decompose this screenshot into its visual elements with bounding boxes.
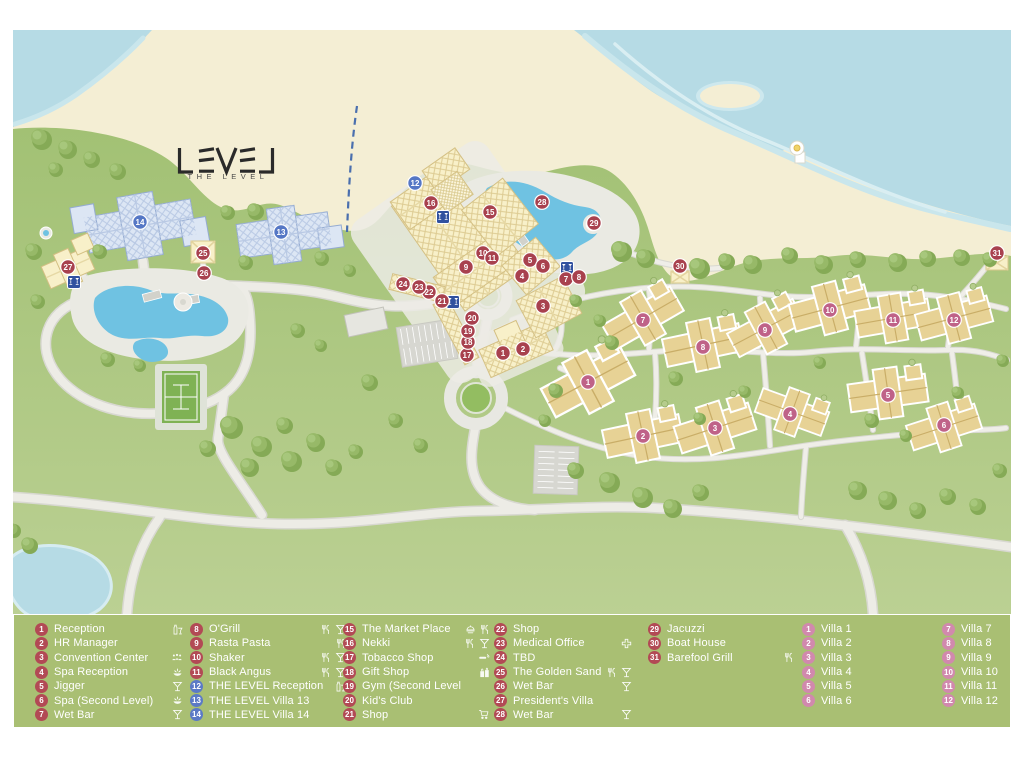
legend-label: Gym (Second Level xyxy=(362,680,461,692)
map-marker-number: 9 xyxy=(763,326,768,335)
cocktail-icon xyxy=(172,709,183,720)
map-marker-number: 15 xyxy=(486,208,495,217)
legend-marker-number: 17 xyxy=(343,651,356,664)
resort-map-page: THE LEVEL 123456789101112131415161718192… xyxy=(0,0,1024,768)
legend-item: 4Spa Reception xyxy=(35,665,185,679)
legend-column-1: 1Reception2HR Manager3Convention Center4… xyxy=(35,622,185,722)
map-marker-service-2: 2 xyxy=(516,342,531,357)
cocktail-icon xyxy=(621,681,632,692)
map-marker-service-15: 15 xyxy=(483,205,498,220)
map-marker-villa-3: 3 xyxy=(708,421,723,436)
map-marker-number: 28 xyxy=(538,198,547,207)
legend-item: 10Villa 10 xyxy=(942,665,1020,679)
legend-item: 5Jigger xyxy=(35,679,185,693)
map-marker-villa-1: 1 xyxy=(581,375,596,390)
legend-label: Jigger xyxy=(54,680,85,692)
map-marker-number: 26 xyxy=(200,269,209,278)
legend-item: 2HR Manager xyxy=(35,636,185,650)
legend-marker-number: 4 xyxy=(35,666,48,679)
legend-label: Villa 6 xyxy=(821,695,852,707)
legend-marker-number: 5 xyxy=(35,680,48,693)
legend-marker-number: 2 xyxy=(802,637,815,650)
legend-item: 11Villa 11 xyxy=(942,679,1020,693)
map-marker-number: 13 xyxy=(277,228,286,237)
legend-icons xyxy=(172,624,183,635)
map-marker-service-20: 20 xyxy=(465,311,480,326)
legend-label: Villa 3 xyxy=(821,652,852,664)
cocktail-icon xyxy=(621,709,632,720)
map-marker-service-17: 17 xyxy=(460,348,475,363)
legend-marker-number: 10 xyxy=(942,666,955,679)
wet-bar-icon xyxy=(68,276,81,289)
legend-label: Nekki xyxy=(362,637,390,649)
legend-label: Convention Center xyxy=(54,652,148,664)
legend-label: Shaker xyxy=(209,652,245,664)
cocktail-icon xyxy=(172,681,183,692)
map-marker-number: 11 xyxy=(488,254,497,263)
restaurant-icon xyxy=(784,652,794,663)
legend-marker-number: 11 xyxy=(190,666,203,679)
map-marker-level-14: 14 xyxy=(133,215,148,230)
legend-marker-number: 7 xyxy=(942,623,955,636)
map-marker-number: 12 xyxy=(950,316,959,325)
legend-label: Medical Office xyxy=(513,637,585,649)
map-marker-service-19: 19 xyxy=(461,324,476,339)
map-marker-level-12: 12 xyxy=(408,176,423,191)
legend-label: Rasta Pasta xyxy=(209,637,271,649)
map-marker-number: 5 xyxy=(886,391,891,400)
legend-label: Wet Bar xyxy=(513,709,554,721)
map-marker-villa-7: 7 xyxy=(636,313,651,328)
legend-label: President's Villa xyxy=(513,695,593,707)
legend-marker-number: 31 xyxy=(648,651,661,664)
spa-icon xyxy=(172,695,183,706)
legend-item: 10Shaker xyxy=(190,651,348,665)
map-marker-villa-9: 9 xyxy=(758,323,773,338)
legend-label: Shop xyxy=(362,709,388,721)
legend-marker-number: 14 xyxy=(190,708,203,721)
legend-marker-number: 11 xyxy=(942,680,955,693)
legend-item: 19Gym (Second Level xyxy=(343,679,492,693)
restaurant-icon xyxy=(465,638,475,649)
legend-item: 13THE LEVEL Villa 13 xyxy=(190,693,348,707)
legend-item: 6Villa 6 xyxy=(802,693,908,707)
legend-icons xyxy=(607,667,632,678)
legend-marker-number: 26 xyxy=(494,680,507,693)
map-marker-villa-5: 5 xyxy=(881,388,896,403)
legend-item: 11Black Angus xyxy=(190,665,348,679)
legend-item: 7Villa 7 xyxy=(942,622,1020,636)
legend-icons xyxy=(172,709,183,720)
lake xyxy=(7,545,112,621)
legend-marker-number: 2 xyxy=(35,637,48,650)
legend-label: Shop xyxy=(513,623,539,635)
map-marker-service-3: 3 xyxy=(536,299,551,314)
legend-marker-number: 7 xyxy=(35,708,48,721)
legend-item: 12Villa 12 xyxy=(942,693,1020,707)
spa-icon xyxy=(172,667,183,678)
legend-marker-number: 30 xyxy=(648,637,661,650)
legend-label: Spa (Second Level) xyxy=(54,695,153,707)
legend-item: 18Gift Shop xyxy=(343,665,492,679)
legend-marker-number: 18 xyxy=(343,666,356,679)
legend-item: 29Jacuzzi xyxy=(648,622,796,636)
legend-label: THE LEVEL Villa 13 xyxy=(209,695,310,707)
map-marker-number: 30 xyxy=(676,262,685,271)
map-marker-service-23: 23 xyxy=(412,280,427,295)
legend-item: 3Convention Center xyxy=(35,651,185,665)
map-marker-service-6: 6 xyxy=(536,259,551,274)
map-marker-service-30: 30 xyxy=(673,259,688,274)
legend-item: 30Boat House xyxy=(648,636,796,650)
legend-item: 27President's Villa xyxy=(494,693,634,707)
legend-marker-number: 6 xyxy=(35,694,48,707)
legend-label: Villa 5 xyxy=(821,680,852,692)
map-marker-villa-12: 12 xyxy=(947,313,962,328)
legend-label: The Golden Sand xyxy=(513,666,601,678)
legend-marker-number: 5 xyxy=(802,680,815,693)
map-marker-service-5: 5 xyxy=(523,253,538,268)
legend-item: 14THE LEVEL Villa 14 xyxy=(190,708,348,722)
map-marker-villa-6: 6 xyxy=(937,418,952,433)
legend-label: Kid's Club xyxy=(362,695,413,707)
legend-item: 3Villa 3 xyxy=(802,651,908,665)
legend-marker-number: 20 xyxy=(343,694,356,707)
legend-column-3: 15The Market Place16Nekki17Tobacco Shop1… xyxy=(343,622,492,722)
map-marker-number: 18 xyxy=(464,338,473,347)
legend-label: Wet Bar xyxy=(54,709,95,721)
legend-marker-number: 6 xyxy=(802,694,815,707)
map-marker-number: 24 xyxy=(399,280,408,289)
legend-icons xyxy=(621,681,632,692)
map-marker-number: 8 xyxy=(701,343,706,352)
legend-icons xyxy=(171,652,183,663)
map-marker-villa-8: 8 xyxy=(696,340,711,355)
map-marker-number: 3 xyxy=(713,424,718,433)
map-marker-number: 29 xyxy=(590,219,599,228)
map-marker-number: 16 xyxy=(427,199,436,208)
legend-item: 5Villa 5 xyxy=(802,679,908,693)
restaurant-icon xyxy=(321,667,331,678)
legend-column-5: 29Jacuzzi30Boat House31Barefool Grill xyxy=(648,622,796,665)
legend-marker-number: 8 xyxy=(190,623,203,636)
map-marker-number: 9 xyxy=(464,263,469,272)
legend-label: Villa 4 xyxy=(821,666,852,678)
map-marker-number: 7 xyxy=(564,275,569,284)
legend-item: 24TBD xyxy=(494,651,634,665)
legend-item: 1Villa 1 xyxy=(802,622,908,636)
legend-marker-number: 4 xyxy=(802,666,815,679)
legend-label: Jacuzzi xyxy=(667,623,705,635)
map-marker-number: 12 xyxy=(411,179,420,188)
map-marker-service-21: 21 xyxy=(435,294,450,309)
map-marker-number: 21 xyxy=(438,297,447,306)
legend-label: TBD xyxy=(513,652,535,664)
legend-item: 20Kid's Club xyxy=(343,693,492,707)
legend-column-6: 1Villa 12Villa 23Villa 34Villa 45Villa 5… xyxy=(802,622,908,708)
legend-marker-number: 25 xyxy=(494,666,507,679)
fountain-water xyxy=(43,230,49,236)
legend-column-2: 8O'Grill9Rasta Pasta10Shaker11Black Angu… xyxy=(190,622,348,722)
legend-label: Villa 12 xyxy=(961,695,998,707)
legend-label: The Market Place xyxy=(362,623,451,635)
legend-marker-number: 27 xyxy=(494,694,507,707)
legend-marker-number: 1 xyxy=(802,623,815,636)
legend-item: 6Spa (Second Level) xyxy=(35,693,185,707)
map-marker-number: 27 xyxy=(64,263,73,272)
map-marker-number: 20 xyxy=(468,314,477,323)
legend-icons xyxy=(621,638,632,649)
legend-item: 28Wet Bar xyxy=(494,708,634,722)
spa-island-center xyxy=(180,299,186,305)
legend-marker-number: 1 xyxy=(35,623,48,636)
map-marker-number: 3 xyxy=(541,302,546,311)
legend-item: 2Villa 2 xyxy=(802,636,908,650)
legend-marker-number: 28 xyxy=(494,708,507,721)
tennis-court xyxy=(155,364,207,430)
legend-label: Villa 10 xyxy=(961,666,998,678)
map-marker-service-11: 11 xyxy=(485,251,500,266)
map-marker-number: 4 xyxy=(520,272,525,281)
legend-column-4: 22Shop23Medical Office24TBD25The Golden … xyxy=(494,622,634,722)
map-marker-service-25: 25 xyxy=(196,246,211,261)
legend-item: 12THE LEVEL Reception xyxy=(190,679,348,693)
map-marker-villa-11: 11 xyxy=(886,313,901,328)
map-marker-number: 11 xyxy=(889,316,898,325)
map-marker-number: 19 xyxy=(464,327,473,336)
legend-label: O'Grill xyxy=(209,623,240,635)
legend-label: Villa 2 xyxy=(821,637,852,649)
legend-marker-number: 16 xyxy=(343,637,356,650)
legend-item: 8Villa 8 xyxy=(942,636,1020,650)
legend-label: Wet Bar xyxy=(513,680,554,692)
map-marker-number: 7 xyxy=(641,316,646,325)
map-marker-service-26: 26 xyxy=(197,266,212,281)
restaurant-icon xyxy=(321,652,331,663)
legend-icons xyxy=(784,652,794,663)
map-marker-service-24: 24 xyxy=(396,277,411,292)
cocktail-icon xyxy=(479,638,490,649)
legend-label: Tobacco Shop xyxy=(362,652,434,664)
legend-item: 26Wet Bar xyxy=(494,679,634,693)
legend-marker-number: 24 xyxy=(494,651,507,664)
map-marker-villa-2: 2 xyxy=(636,429,651,444)
legend-item: 31Barefool Grill xyxy=(648,651,796,665)
legend-icons xyxy=(621,709,632,720)
legend-icons xyxy=(465,624,490,635)
legend-label: Gift Shop xyxy=(362,666,409,678)
map-marker-service-1: 1 xyxy=(496,346,511,361)
legend-marker-number: 19 xyxy=(343,680,356,693)
map-marker-level-13: 13 xyxy=(274,225,289,240)
map-marker-number: 5 xyxy=(528,256,533,265)
legend-label: Villa 8 xyxy=(961,637,992,649)
map-marker-villa-10: 10 xyxy=(823,303,838,318)
legend-item: 23Medical Office xyxy=(494,636,634,650)
legend-marker-number: 3 xyxy=(802,651,815,664)
legend-marker-number: 13 xyxy=(190,694,203,707)
legend-label: Villa 1 xyxy=(821,623,852,635)
legend-icons xyxy=(172,681,183,692)
legend-marker-number: 8 xyxy=(942,637,955,650)
legend-icons xyxy=(479,667,490,678)
map-marker-number: 23 xyxy=(415,283,424,292)
legend-item: 17Tobacco Shop xyxy=(343,651,492,665)
legend: 1Reception2HR Manager3Convention Center4… xyxy=(14,615,1010,727)
legend-label: Spa Reception xyxy=(54,666,128,678)
map-marker-service-31: 31 xyxy=(990,246,1005,261)
legend-label: Villa 11 xyxy=(961,680,997,692)
legend-item: 9Rasta Pasta xyxy=(190,636,348,650)
map-marker-villa-4: 4 xyxy=(783,407,798,422)
legend-label: Boat House xyxy=(667,637,726,649)
legend-item: 21Shop xyxy=(343,708,492,722)
restaurant-icon xyxy=(607,667,617,678)
map-marker-service-28: 28 xyxy=(535,195,550,210)
legend-item: 15The Market Place xyxy=(343,622,492,636)
legend-label: THE LEVEL Reception xyxy=(209,680,323,692)
map-marker-number: 14 xyxy=(136,218,145,227)
medical-cross-icon xyxy=(621,638,632,649)
legend-label: Villa 9 xyxy=(961,652,992,664)
legend-marker-number: 23 xyxy=(494,637,507,650)
people-icon xyxy=(171,652,183,663)
cocktail-icon xyxy=(621,667,632,678)
map-marker-number: 17 xyxy=(463,351,472,360)
legend-marker-number: 22 xyxy=(494,623,507,636)
map-marker-number: 1 xyxy=(501,349,506,358)
legend-label: Reception xyxy=(54,623,105,635)
legend-icons xyxy=(478,709,490,720)
legend-item: 25The Golden Sand xyxy=(494,665,634,679)
cigar-icon xyxy=(478,652,490,663)
map-marker-service-7: 7 xyxy=(559,272,574,287)
legend-marker-number: 9 xyxy=(942,651,955,664)
legend-marker-number: 29 xyxy=(648,623,661,636)
legend-label: Barefool Grill xyxy=(667,652,733,664)
buffet-icon xyxy=(465,624,476,635)
legend-item: 7Wet Bar xyxy=(35,708,185,722)
legend-label: Black Angus xyxy=(209,666,271,678)
map-marker-number: 1 xyxy=(586,378,591,387)
legend-label: Villa 7 xyxy=(961,623,992,635)
legend-item: 22Shop xyxy=(494,622,634,636)
map-marker-service-29: 29 xyxy=(587,216,602,231)
legend-column-7: 7Villa 78Villa 89Villa 910Villa 1011Vill… xyxy=(942,622,1020,708)
map-marker-service-9: 9 xyxy=(459,260,474,275)
gift-bags-icon xyxy=(479,667,490,678)
restaurant-icon xyxy=(321,624,331,635)
map-marker-service-27: 27 xyxy=(61,260,76,275)
legend-marker-number: 12 xyxy=(942,694,955,707)
legend-label: THE LEVEL Villa 14 xyxy=(209,709,310,721)
map-marker-number: 31 xyxy=(993,249,1002,258)
legend-item: 16Nekki xyxy=(343,636,492,650)
map-marker-service-8: 8 xyxy=(572,270,587,285)
legend-icons xyxy=(478,652,490,663)
legend-marker-number: 21 xyxy=(343,708,356,721)
shopping-cart-icon xyxy=(478,709,490,720)
map-marker-number: 6 xyxy=(541,262,546,271)
map-marker-number: 2 xyxy=(521,345,526,354)
map-marker-number: 4 xyxy=(788,410,793,419)
island xyxy=(700,84,760,108)
legend-icons xyxy=(465,638,490,649)
legend-marker-number: 12 xyxy=(190,680,203,693)
legend-item: 9Villa 9 xyxy=(942,651,1020,665)
map-marker-number: 25 xyxy=(199,249,208,258)
restaurant-icon xyxy=(480,624,490,635)
legend-icons xyxy=(172,695,183,706)
legend-label: HR Manager xyxy=(54,637,118,649)
legend-item: 4Villa 4 xyxy=(802,665,908,679)
map-marker-number: 10 xyxy=(826,306,835,315)
map-marker-number: 6 xyxy=(942,421,947,430)
wet-bar-icon xyxy=(437,211,450,224)
legend-item: 1Reception xyxy=(35,622,185,636)
level-logo-subtitle: THE LEVEL xyxy=(188,172,269,181)
legend-marker-number: 10 xyxy=(190,651,203,664)
map-marker-service-16: 16 xyxy=(424,196,439,211)
map-marker-number: 8 xyxy=(577,273,582,282)
map-marker-number: 2 xyxy=(641,432,646,441)
legend-marker-number: 3 xyxy=(35,651,48,664)
legend-icons xyxy=(172,667,183,678)
legend-item: 8O'Grill xyxy=(190,622,348,636)
legend-marker-number: 9 xyxy=(190,637,203,650)
legend-marker-number: 15 xyxy=(343,623,356,636)
drinks-icon xyxy=(172,624,183,635)
map-marker-service-4: 4 xyxy=(515,269,530,284)
